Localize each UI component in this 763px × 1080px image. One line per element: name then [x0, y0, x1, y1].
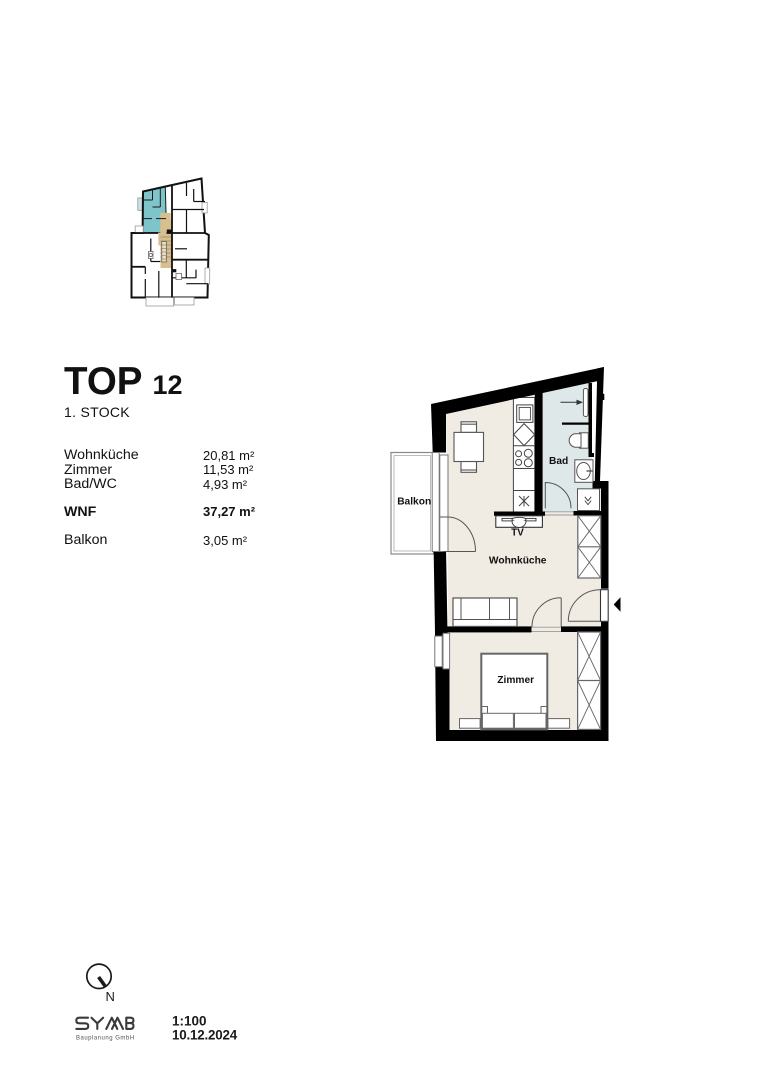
svg-text:Wohnküche: Wohnküche — [489, 555, 547, 566]
svg-text:Bad: Bad — [549, 456, 568, 467]
svg-text:Balkon: Balkon — [397, 497, 431, 508]
svg-text:Zimmer: Zimmer — [497, 675, 534, 686]
svg-text:1:100: 1:100 — [172, 1014, 207, 1029]
svg-text:N: N — [106, 989, 115, 1004]
svg-text:10.12.2024: 10.12.2024 — [172, 1027, 238, 1042]
svg-text:TV: TV — [511, 527, 524, 538]
svg-text:Bauplanung GmbH: Bauplanung GmbH — [76, 1035, 135, 1041]
